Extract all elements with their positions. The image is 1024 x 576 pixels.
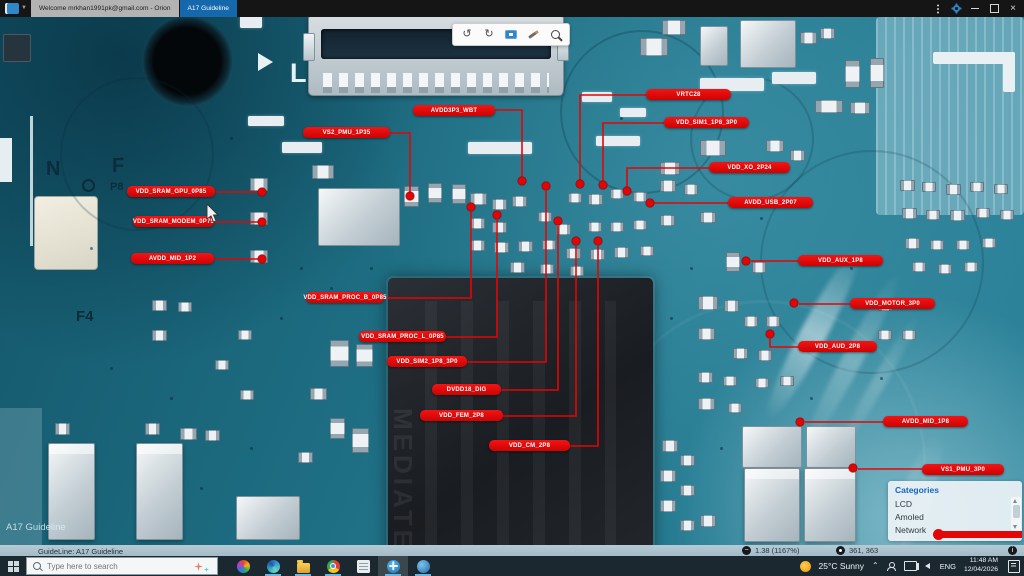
test-point-label[interactable]: VDD_SRAM_PROC_B_0P85: [306, 292, 384, 303]
clock-time: 11:48 AM: [970, 557, 998, 564]
coordinate-indicator-icon[interactable]: [836, 546, 845, 555]
pcb-via: [810, 397, 813, 400]
test-point-label[interactable]: AVDD_USB_2P07: [728, 197, 813, 208]
pcb-pad: [772, 72, 816, 84]
test-point-label[interactable]: VDD_XO_2P24: [709, 162, 790, 173]
pcb-capacitor: [970, 182, 984, 192]
pcb-module: [742, 426, 802, 468]
orion-tool-icon: [387, 560, 400, 573]
test-point-dot: [576, 180, 584, 188]
silkscreen-text: N: [46, 158, 60, 181]
test-point-label[interactable]: VDD_SRAM_MODEM_0P75: [133, 216, 214, 227]
pcb-capacitor: [330, 340, 349, 367]
draw-icon: [528, 30, 539, 39]
test-point-label[interactable]: VDD_AUX_1P8: [798, 255, 883, 266]
pcb-trace: [60, 77, 214, 231]
pcb-capacitor: [588, 222, 602, 232]
canvas-watermark: A17 Guideline: [6, 522, 66, 533]
pcb-via: [230, 137, 233, 140]
pcb-capacitor: [492, 222, 507, 233]
rotate-left-button[interactable]: ↺: [459, 27, 475, 43]
pcb-capacitor: [356, 344, 373, 367]
status-text: GuideLine: A17 Guideline: [38, 547, 123, 556]
pcb-via: [760, 217, 763, 220]
info-group: i: [1008, 545, 1017, 556]
pcb-capacitor: [518, 241, 533, 252]
menu-kebab-icon[interactable]: [937, 8, 939, 10]
pcb-capacitor: [542, 240, 556, 250]
scroll-down-icon[interactable]: [1013, 525, 1017, 529]
pcb-capacitor: [662, 20, 686, 35]
pcb-capacitor: [404, 186, 419, 207]
pcb-capacitor: [964, 262, 978, 272]
taskbar-search[interactable]: [26, 557, 218, 575]
pcb-pad: [582, 92, 612, 102]
pcb-capacitor: [680, 485, 695, 496]
category-item-lcd[interactable]: LCD: [888, 497, 1022, 510]
copilot-sparkle-icon: [194, 562, 203, 571]
zoom-button[interactable]: [547, 27, 563, 43]
pcb-capacitor: [660, 470, 676, 482]
draw-button[interactable]: [525, 27, 541, 43]
leader-line: [390, 133, 410, 192]
taskbar-app-file-explorer[interactable]: [288, 556, 318, 576]
pcb-capacitor: [470, 193, 487, 205]
categories-title: Categories: [888, 481, 1022, 497]
pcb-capacitor: [752, 262, 766, 273]
pcb-via: [200, 487, 203, 490]
pcb-capacitor: [766, 140, 784, 152]
pcb-trace: [30, 116, 33, 246]
taskbar-app-chrome[interactable]: [318, 556, 348, 576]
pcb-capacitor: [640, 246, 654, 256]
pcb-capacitor: [568, 193, 582, 203]
pcb-via: [110, 367, 113, 370]
title-bar: ▼ Welcome mrkhan1991pk@gmail.com - Orion…: [0, 0, 1024, 17]
pcb-capacitor: [540, 264, 554, 274]
tab-a17-guideline[interactable]: A17 Guideline: [180, 0, 237, 17]
pcb-capacitor: [698, 328, 715, 340]
search-input[interactable]: [45, 561, 179, 572]
pcb-capacitor: [660, 215, 675, 226]
pcb-capacitor: [660, 162, 680, 175]
pcb-capacitor: [633, 220, 647, 230]
pcb-capacitor: [538, 212, 552, 222]
taskbar-app-document-app[interactable]: [348, 556, 378, 576]
pcb-capacitor: [922, 182, 936, 192]
silkscreen-text: F: [112, 155, 124, 178]
pcb-module: [236, 496, 300, 540]
pcb-capacitor: [55, 423, 70, 435]
pcb-capacitor: [845, 60, 860, 88]
pcb-via: [90, 247, 93, 250]
fit-screen-button[interactable]: [503, 27, 519, 43]
pcb-capacitor: [556, 224, 571, 235]
pcb-pad: [596, 136, 640, 146]
pcb-via: [720, 447, 723, 450]
windows-logo-icon: [8, 561, 13, 566]
test-point-label[interactable]: VRTC28: [646, 89, 731, 100]
tab-strip: Welcome mrkhan1991pk@gmail.com - OrionA1…: [31, 0, 238, 17]
pcb-capacitor: [758, 350, 772, 361]
pcb-capacitor: [728, 403, 742, 413]
taskbar-app-blue-app[interactable]: [408, 556, 438, 576]
pcb-capacitor: [660, 500, 676, 512]
pcb-capacitor: [982, 238, 996, 248]
taskbar: 25°C Sunny ⌃ ENG 11:48 AM 12/04/2026: [0, 556, 1024, 576]
pcb-capacitor: [250, 178, 268, 191]
search-icon: [33, 562, 41, 570]
test-point-label[interactable]: VDD_MOTOR_3P0: [850, 298, 935, 309]
pcb-capacitor: [870, 58, 884, 88]
test-point-label[interactable]: AVDD3P3_WBT: [413, 105, 495, 116]
pcb-canvas[interactable]: MEDIATEK AVDD3P3_WBTVS2_PMU_1P35VRTC28VD…: [0, 17, 1024, 545]
pcb-capacitor: [640, 38, 668, 56]
pcb-capacitor: [850, 102, 870, 114]
pcb-capacitor: [510, 262, 525, 273]
chip-marking: MEDIATEK: [387, 408, 418, 545]
taskbar-apps: [228, 556, 438, 576]
pcb-capacitor: [700, 212, 716, 223]
zoom-status-group: − 1.38 (1167%): [742, 545, 799, 556]
scroll-up-icon[interactable]: [1013, 499, 1017, 503]
pcb-module: [804, 468, 856, 542]
pcb-capacitor: [698, 372, 713, 383]
pcb-capacitor: [298, 452, 313, 463]
pcb-capacitor: [238, 330, 252, 340]
test-point-label[interactable]: DVDD18_DIG: [432, 384, 501, 395]
speaker-icon[interactable]: [925, 563, 930, 569]
test-point-label[interactable]: VS1_PMU_3P0: [922, 464, 1004, 475]
test-point-label[interactable]: VS2_PMU_1P35: [303, 127, 390, 138]
pcb-capacitor: [312, 165, 334, 179]
mouse-cursor: [206, 203, 220, 223]
pcb-capacitor-large: [136, 443, 183, 540]
pcb-capacitor: [310, 388, 327, 400]
language-indicator[interactable]: ENG: [940, 562, 956, 571]
pcb-triangle-mark: [258, 53, 273, 71]
pcb-via: [330, 287, 333, 290]
pcb-capacitor: [878, 330, 892, 340]
pcb-pad: [0, 138, 12, 182]
pcb-capacitor: [790, 150, 805, 161]
test-point-label[interactable]: VDD_SIM1_1P8_3P0: [664, 117, 749, 128]
pcb-capacitor: [352, 428, 369, 453]
app-window-icon[interactable]: [5, 3, 19, 14]
pcb-capacitor: [930, 240, 944, 250]
pcb-capacitor: [470, 240, 485, 251]
pcb-via: [250, 447, 253, 450]
connector-pins: [323, 73, 549, 93]
pcb-capacitor: [976, 208, 990, 218]
silkscreen-circle: [82, 179, 95, 192]
pcb-capacitor: [492, 199, 507, 210]
copilot-sparkle-icon: [204, 567, 209, 572]
fit-screen-icon: [505, 30, 517, 39]
test-point-label[interactable]: VDD_AUD_2P8: [798, 341, 877, 352]
test-point-label[interactable]: VDD_SRAM_GPU_0P85: [127, 186, 215, 197]
zoom-icon: [551, 30, 560, 39]
pcb-capacitor: [428, 183, 442, 203]
status-bar: GuideLine: A17 Guideline − 1.38 (1167%) …: [0, 545, 1024, 556]
notification-icon[interactable]: [1008, 560, 1020, 573]
pcb-pad: [620, 108, 646, 117]
pcb-capacitor: [902, 330, 916, 340]
pcb-capacitor: [700, 140, 726, 156]
test-point-dot: [518, 177, 526, 185]
pcb-capacitor: [723, 376, 737, 386]
silkscreen-text: F4: [76, 308, 94, 325]
pcb-via: [280, 317, 283, 320]
test-point-dot: [594, 237, 602, 245]
test-point-dot: [572, 237, 580, 245]
category-item-amoled[interactable]: Amoled: [888, 510, 1022, 523]
pcb-via: [850, 267, 853, 270]
coordinates-group: 361, 363: [836, 545, 878, 556]
pcb-via: [650, 347, 653, 350]
scrollbar-thumb[interactable]: [1013, 505, 1020, 518]
pcb-capacitor: [726, 252, 740, 272]
pcb-capacitor: [724, 300, 739, 312]
categories-panel: Categories LCDAmoledNetwork: [888, 481, 1022, 541]
silkscreen-text: 2: [747, 17, 753, 20]
test-point-label[interactable]: AVDD_MID_1P2: [131, 253, 214, 264]
pcb-capacitor: [610, 222, 624, 232]
pcb-capacitor: [800, 32, 817, 44]
pcb-capacitor: [902, 208, 917, 219]
test-point-dot: [646, 199, 654, 207]
pcb-module: [744, 468, 800, 542]
pcb-capacitor: [994, 184, 1008, 194]
pcb-capacitor: [946, 184, 961, 195]
pcb-capacitor: [614, 247, 629, 258]
chrome-icon: [327, 560, 340, 573]
pcb-capacitor: [1000, 210, 1014, 220]
maximize-button[interactable]: [990, 4, 999, 13]
test-point-label[interactable]: VDD_FEM_2P8: [420, 410, 503, 421]
pcb-capacitor: [145, 423, 160, 435]
pcb-capacitor: [956, 240, 970, 250]
pcb-capacitor: [610, 189, 624, 199]
pcb-capacitor: [780, 376, 794, 386]
pcb-capacitor: [633, 192, 647, 202]
system-tray: 25°C Sunny ⌃ ENG 11:48 AM 12/04/2026: [800, 556, 1024, 576]
image-toolbar: ↺↻: [452, 23, 570, 46]
test-point-label[interactable]: VDD_CM_2P8: [489, 440, 570, 451]
copilot-icon: [237, 560, 250, 573]
test-point-dot: [542, 182, 550, 190]
blue-app-icon: [417, 560, 430, 573]
pcb-capacitor: [950, 210, 965, 221]
pcb-capacitor: [680, 520, 695, 531]
pcb-module: [318, 188, 400, 246]
pcb-capacitor: [152, 300, 167, 311]
pcb-capacitor: [698, 296, 718, 310]
pcb-capacitor: [330, 418, 345, 439]
test-point-dot: [742, 257, 750, 265]
silkscreen-text: P8: [110, 181, 123, 193]
test-point-label[interactable]: AVDD_MID_1P8: [883, 416, 968, 427]
pcb-capacitor: [766, 316, 780, 327]
pcb-capacitor: [662, 440, 678, 452]
pcb-capacitor: [178, 302, 192, 312]
pcb-capacitor: [905, 238, 920, 249]
pcb-capacitor: [815, 100, 843, 113]
pcb-capacitor: [180, 428, 197, 440]
coordinates-value: 361, 363: [849, 546, 878, 555]
pcb-capacitor: [733, 348, 748, 359]
clock-date: 12/04/2026: [964, 566, 998, 573]
test-point-dot: [493, 211, 501, 219]
rotate-left-icon: ↺: [462, 29, 471, 40]
pcb-capacitor: [900, 180, 915, 191]
file-explorer-icon: [297, 563, 310, 573]
settings-gear-icon[interactable]: [953, 5, 960, 12]
weather-text[interactable]: 25°C Sunny: [819, 561, 864, 571]
pcb-capacitor: [744, 316, 758, 327]
pcb-capacitor: [215, 360, 229, 370]
pcb-capacitor: [470, 218, 485, 229]
pcb-via: [690, 267, 693, 270]
chevron-down-icon[interactable]: ▼: [21, 5, 27, 17]
pcb-capacitor: [700, 515, 716, 527]
window-controls: ×: [934, 0, 1024, 17]
pcb-capacitor: [926, 210, 940, 220]
connector-tab: [303, 33, 315, 61]
pcb-via: [670, 317, 673, 320]
test-point-label[interactable]: VDD_SIM2_1P8_3P0: [387, 356, 467, 367]
pcb-shield-frame: [1003, 52, 1015, 92]
pcb-pad: [468, 142, 532, 154]
pcb-via: [620, 117, 623, 120]
zoom-indicator-icon[interactable]: −: [742, 546, 751, 555]
pcb-capacitor: [660, 180, 676, 192]
pcb-via: [880, 377, 883, 380]
taskbar-app-orion-tool[interactable]: [378, 556, 408, 576]
pcb-capacitor: [938, 264, 952, 274]
categories-highlight: [936, 531, 1022, 538]
pcb-capacitor: [205, 430, 220, 441]
info-icon[interactable]: i: [1008, 546, 1017, 555]
pcb-capacitor: [250, 250, 268, 263]
pcb-capacitor: [684, 184, 698, 195]
pcb-capacitor: [590, 249, 605, 260]
pcb-capacitor: [680, 455, 695, 466]
pcb-pad: [282, 142, 322, 153]
pcb-capacitor: [912, 262, 926, 272]
pcb-via: [300, 267, 303, 270]
categories-scrollbar[interactable]: [1011, 497, 1021, 531]
pcb-component: [3, 34, 31, 62]
tray-expand-icon[interactable]: ⌃: [872, 561, 879, 570]
pcb-capacitor: [566, 248, 581, 259]
pcb-capacitor: [512, 196, 527, 207]
start-button[interactable]: [0, 556, 26, 576]
pcb-capacitor: [152, 330, 167, 341]
taskbar-app-edge[interactable]: [258, 556, 288, 576]
pcb-capacitor: [494, 242, 509, 253]
pcb-via: [170, 397, 173, 400]
pcb-capacitor: [820, 28, 835, 39]
pcb-component: [700, 26, 728, 66]
weather-sun-icon[interactable]: [800, 561, 811, 572]
pcb-capacitor: [698, 398, 715, 410]
pcb-pad: [240, 17, 262, 28]
rotate-right-button[interactable]: ↻: [481, 27, 497, 43]
pcb-capacitor: [250, 212, 268, 225]
pcb-capacitor: [240, 390, 254, 400]
minimize-button[interactable]: [971, 8, 979, 9]
edge-icon: [267, 560, 280, 573]
rotate-right-icon: ↻: [484, 29, 493, 40]
account-icon[interactable]: [887, 562, 896, 571]
close-button[interactable]: ×: [1010, 4, 1016, 14]
pcb-capacitor: [452, 184, 466, 204]
tab-welcome[interactable]: Welcome mrkhan1991pk@gmail.com - Orion: [31, 0, 179, 17]
test-point-label[interactable]: VDD_SRAM_PROC_L_0P85: [359, 331, 446, 342]
pcb-via: [370, 267, 373, 270]
document-app-icon: [357, 560, 370, 573]
clock[interactable]: 11:48 AM 12/04/2026: [964, 557, 998, 575]
zoom-value: 1.38 (1167%): [755, 546, 799, 555]
pcb-capacitor: [755, 378, 769, 388]
pcb-component: [740, 20, 796, 68]
pcb-capacitor: [570, 266, 584, 276]
taskbar-app-copilot[interactable]: [228, 556, 258, 576]
pcb-pad: [248, 116, 284, 126]
pcb-capacitor: [588, 194, 603, 205]
silkscreen-text: L: [290, 58, 307, 89]
